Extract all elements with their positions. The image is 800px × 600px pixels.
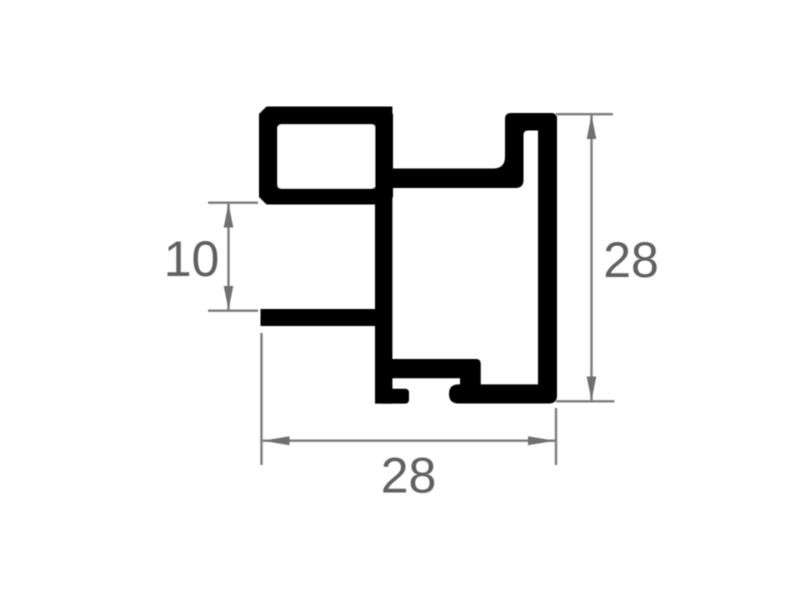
svg-text:28: 28 <box>381 447 437 503</box>
svg-text:10: 10 <box>164 231 220 287</box>
svg-text:28: 28 <box>603 232 659 288</box>
